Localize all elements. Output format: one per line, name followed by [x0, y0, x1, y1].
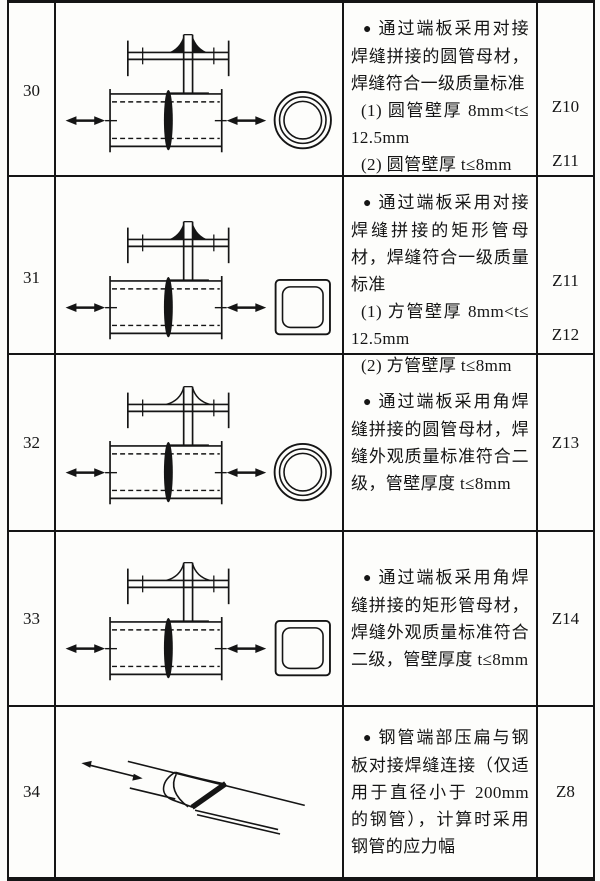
tube-elevation-view	[66, 617, 267, 680]
category-cell: Z11 Z12	[536, 177, 593, 379]
square-cross-section	[276, 280, 330, 334]
butt-weld-icon	[167, 35, 209, 52]
description-text: ●通过端板采用角焊缝拼接的圆管母材，焊缝外观质量标准符合二级，管壁厚度 t≤8m…	[351, 388, 529, 497]
weld-joint-category-table: 30 ●通过端板采用对接焊缝拼接的圆管母材，焊缝符合一级质量标准 (1) 圆管壁…	[7, 0, 595, 881]
fillet-weld-icon	[166, 563, 209, 580]
category-cell: Z10 Z11	[536, 3, 593, 178]
flattened-tube-view	[128, 761, 305, 834]
description-cell: ●通过端板采用角焊缝拼接的矩形管母材，焊缝外观质量标准符合二级，管壁厚度 t≤8…	[342, 532, 536, 705]
description-item-1: (1) 方管壁厚 8mm<t≤12.5mm	[351, 298, 529, 352]
end-plate-butt-weld-round-tube-diagram	[57, 6, 341, 176]
item-number: 32	[9, 355, 54, 530]
square-cross-section	[276, 620, 330, 674]
butt-weld-icon	[167, 223, 209, 240]
category-label: Z11	[538, 151, 593, 171]
end-plate-fillet-weld-square-tube-diagram	[57, 534, 341, 704]
bullet-icon: ●	[363, 571, 373, 586]
weld-detail-view	[128, 34, 229, 93]
description-text: ●钢管端部压扁与钢板对接焊缝连接（仅适用于直径小于 200mm 的钢管），计算时…	[351, 724, 529, 860]
description-item-1: (1) 圆管壁厚 8mm<t≤12.5mm	[351, 97, 529, 151]
joint-diagram-cell	[54, 532, 342, 705]
description-text: ●通过端板采用角焊缝拼接的矩形管母材，焊缝外观质量标准符合二级，管壁厚度 t≤8…	[351, 564, 529, 673]
category-label: Z11	[538, 271, 593, 291]
category-label: Z14	[552, 609, 579, 629]
category-label: Z13	[552, 433, 579, 453]
fillet-weld-icon	[166, 387, 209, 404]
category-cell: Z14	[536, 532, 593, 705]
round-cross-section	[275, 443, 331, 499]
item-number: 30	[9, 3, 54, 178]
description-cell: ●通过端板采用对接焊缝拼接的矩形管母材，焊缝符合一级质量标准 (1) 方管壁厚 …	[342, 177, 536, 379]
table-row-30: 30 ●通过端板采用对接焊缝拼接的圆管母材，焊缝符合一级质量标准 (1) 圆管壁…	[9, 3, 593, 175]
item-number: 33	[9, 532, 54, 705]
item-number: 34	[9, 707, 54, 877]
joint-diagram-cell	[54, 3, 342, 178]
joint-diagram-cell	[54, 355, 342, 530]
weld-detail-view	[128, 222, 229, 281]
weld-detail-view	[128, 386, 229, 445]
weld-detail-view	[128, 562, 229, 621]
load-arrow	[81, 761, 142, 781]
bullet-icon: ●	[363, 395, 373, 410]
description-cell: ●通过端板采用对接焊缝拼接的圆管母材，焊缝符合一级质量标准 (1) 圆管壁厚 8…	[342, 3, 536, 178]
item-number: 31	[9, 177, 54, 379]
category-label: Z10	[538, 97, 593, 117]
tube-elevation-view	[66, 89, 267, 152]
category-cell: Z8	[536, 707, 593, 877]
table-row-31: 31 ●通过端板采用对接焊缝拼接的矩形管母材，焊缝符合一级质量标准 (1) 方管…	[9, 175, 593, 353]
table-row-32: 32 ●通过端板采用角焊缝拼接的圆管母材，焊缝外观质量标准符合二级，管壁厚度 t…	[9, 353, 593, 530]
description-text: ●通过端板采用对接焊缝拼接的圆管母材，焊缝符合一级质量标准	[351, 15, 529, 97]
category-label: Z12	[538, 325, 593, 345]
description-text: ●通过端板采用对接焊缝拼接的矩形管母材，焊缝符合一级质量标准	[351, 189, 529, 298]
category-cell: Z13	[536, 355, 593, 530]
bullet-icon: ●	[363, 22, 373, 37]
joint-diagram-cell	[54, 177, 342, 379]
table-row-33: 33 ●通过端板采用角焊缝拼接的矩形管母材，焊缝外观质量标准符合二级，管壁厚度 …	[9, 530, 593, 705]
flattened-tube-to-plate-butt-weld-diagram	[57, 707, 341, 877]
description-item-2: (2) 圆管壁厚 t≤8mm	[351, 151, 529, 178]
tube-elevation-view	[66, 441, 267, 504]
joint-diagram-cell	[54, 707, 342, 877]
bullet-icon: ●	[363, 196, 373, 211]
tube-elevation-view	[66, 276, 267, 339]
category-label: Z8	[556, 782, 575, 802]
end-plate-fillet-weld-round-tube-diagram	[57, 358, 341, 528]
description-cell: ●通过端板采用角焊缝拼接的圆管母材，焊缝外观质量标准符合二级，管壁厚度 t≤8m…	[342, 355, 536, 530]
bullet-icon: ●	[363, 731, 373, 746]
round-cross-section	[275, 91, 331, 147]
table-row-34: 34 ●钢管端部	[9, 705, 593, 877]
end-plate-butt-weld-square-tube-diagram	[57, 193, 341, 363]
description-cell: ●钢管端部压扁与钢板对接焊缝连接（仅适用于直径小于 200mm 的钢管），计算时…	[342, 707, 536, 877]
